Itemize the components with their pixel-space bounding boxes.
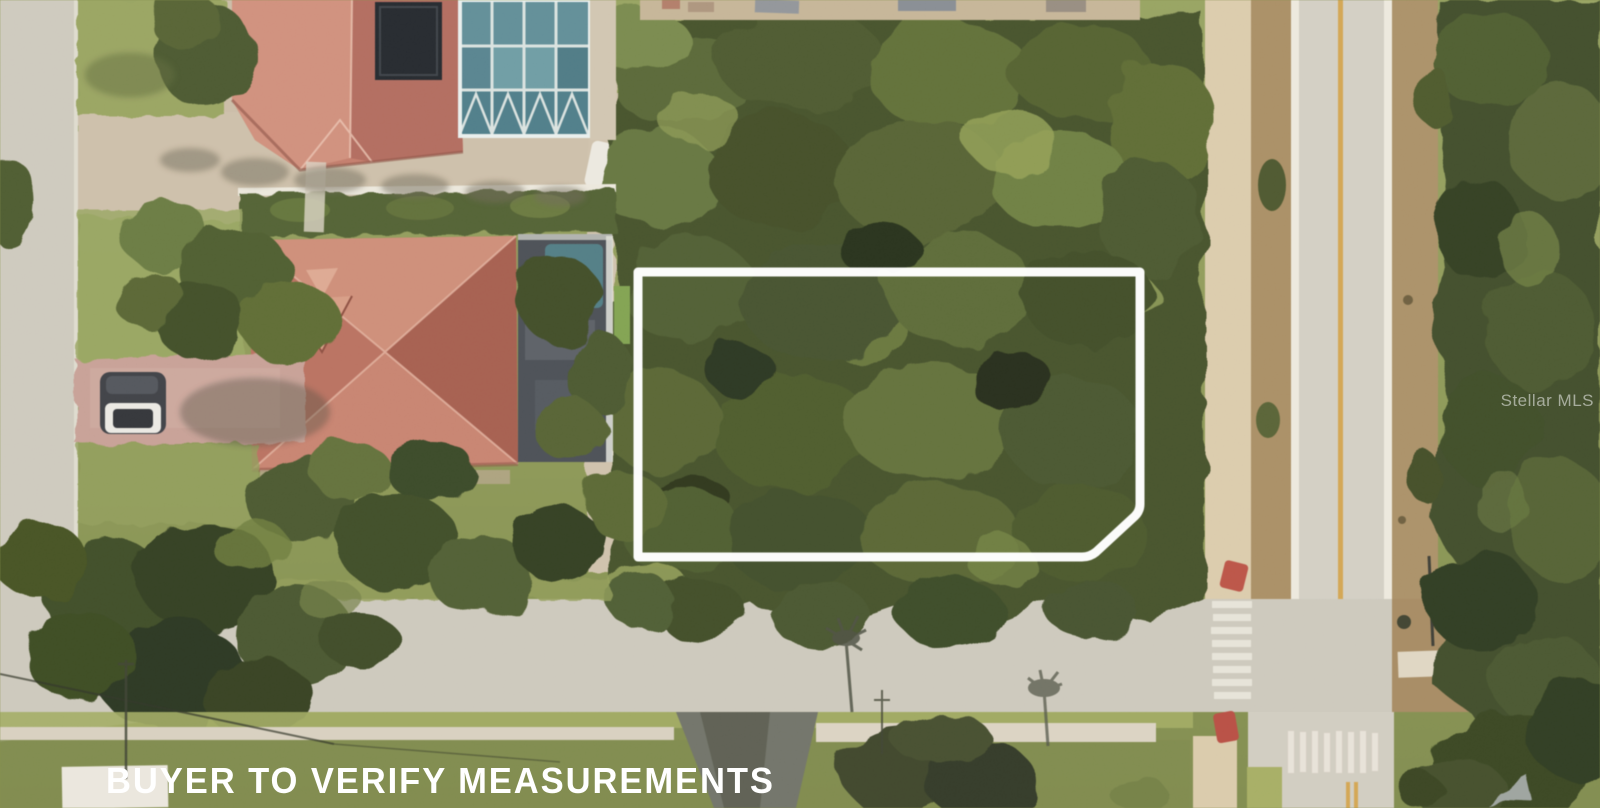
photo-grain (0, 0, 1600, 808)
caption-text: BUYER TO VERIFY MEASUREMENTS (106, 760, 775, 802)
aerial-photo: BUYER TO VERIFY MEASUREMENTS Stellar MLS (0, 0, 1600, 808)
mls-watermark: Stellar MLS (1501, 391, 1594, 411)
aerial-photo-canvas (0, 0, 1600, 808)
